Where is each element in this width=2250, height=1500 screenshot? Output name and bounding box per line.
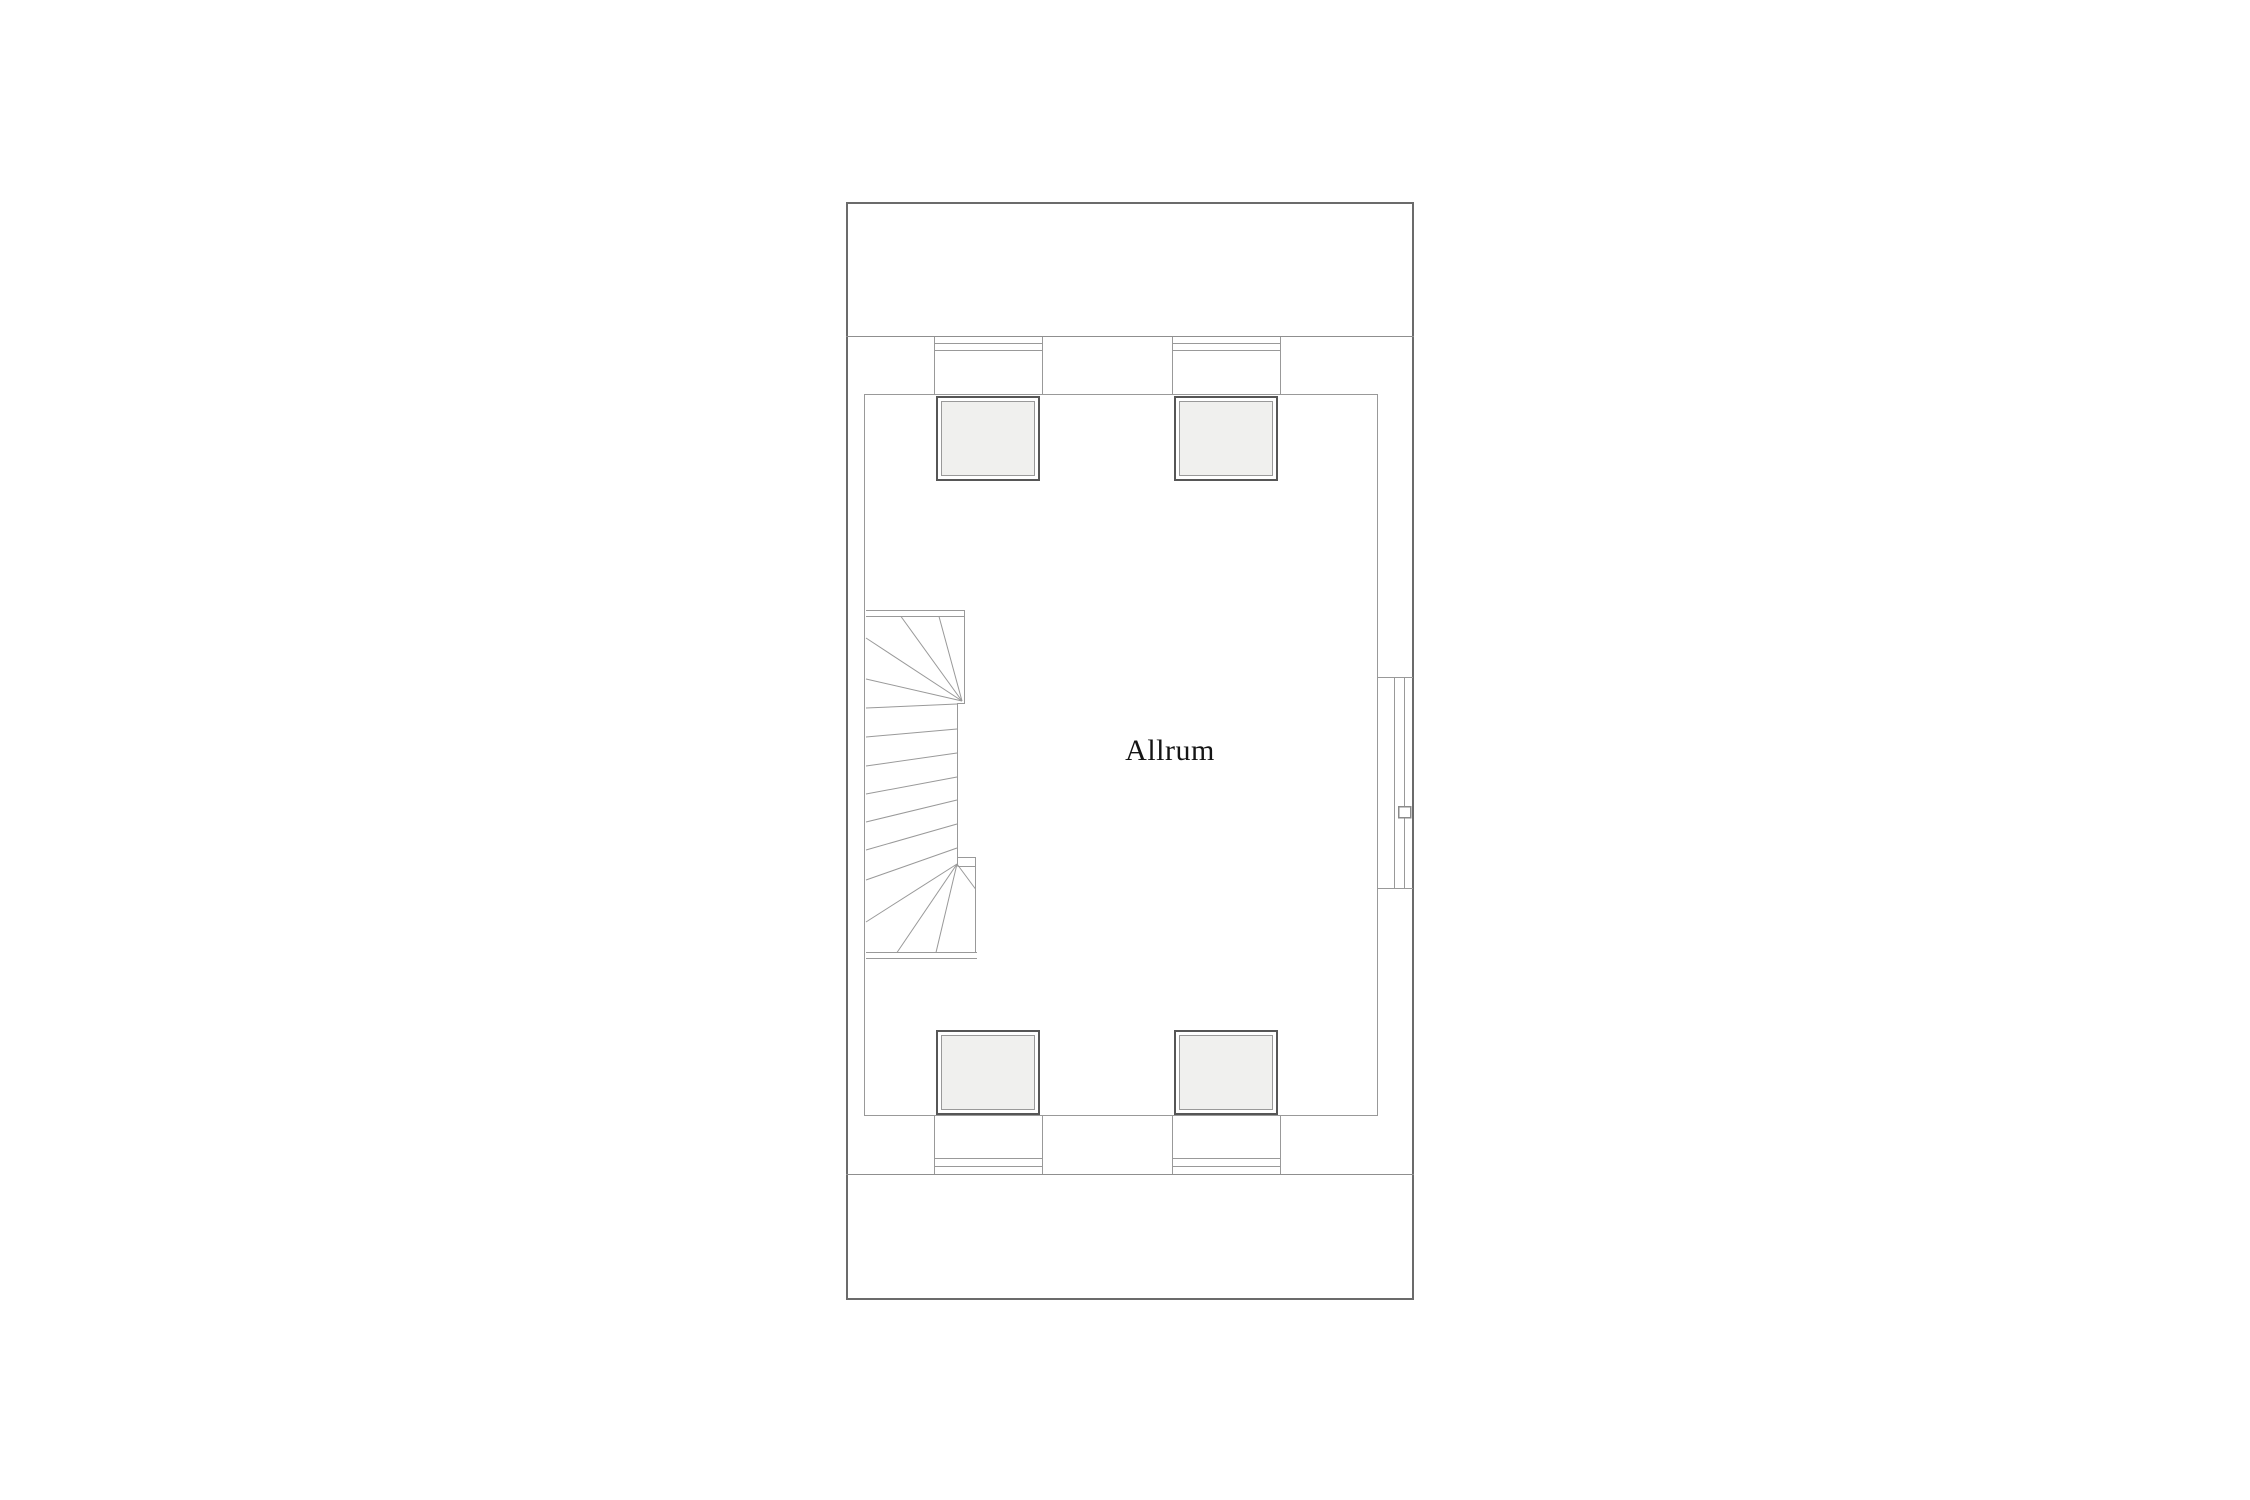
staircase — [866, 611, 977, 959]
window-handle-icon — [1399, 807, 1411, 818]
dormer-bottom-left — [935, 1115, 1043, 1174]
skylight-top-left — [937, 397, 1039, 480]
dormer-top-right — [1173, 337, 1281, 394]
dormer-top-left — [935, 337, 1043, 394]
skylight-bottom-left — [937, 1031, 1039, 1114]
skylight-top-right — [1175, 397, 1277, 480]
dormer-bottom-right — [1173, 1115, 1281, 1174]
room-label: Allrum — [1125, 734, 1215, 768]
right-wall-window — [1378, 678, 1414, 889]
floor-plan: Allrum — [0, 0, 2250, 1500]
skylight-bottom-right — [1175, 1031, 1277, 1114]
